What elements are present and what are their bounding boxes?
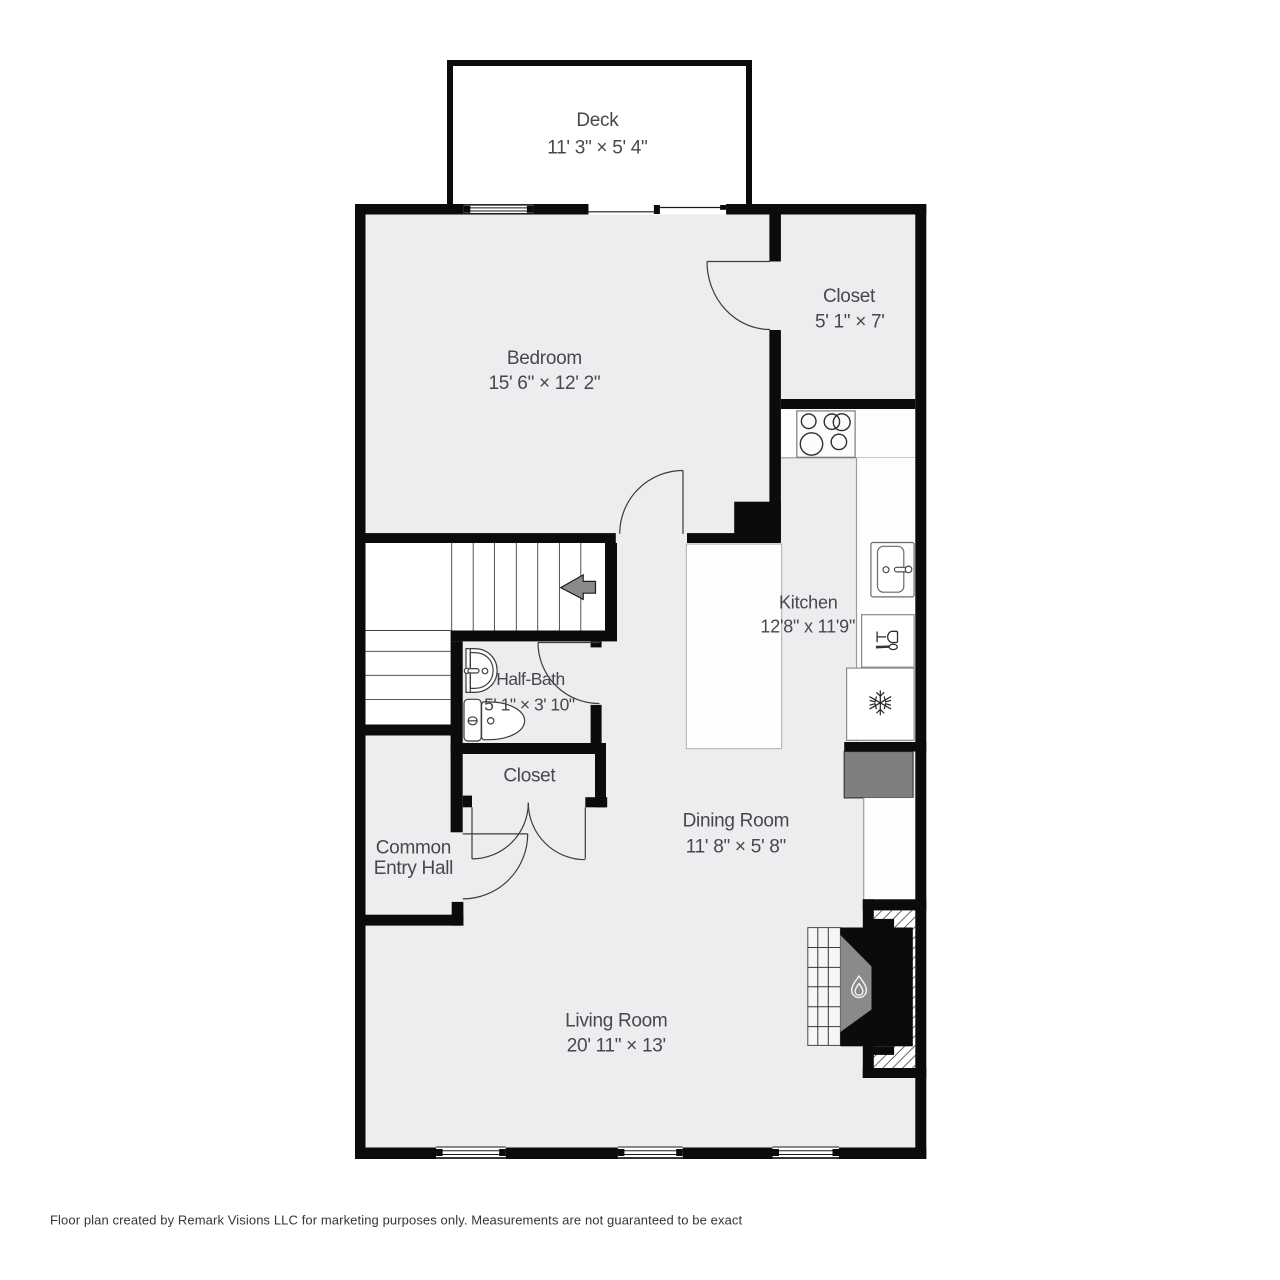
svg-text:Half-Bath: Half-Bath [496,669,564,689]
svg-text:Common: Common [376,837,451,858]
svg-text:15' 6" × 12' 2": 15' 6" × 12' 2" [488,373,600,394]
svg-text:12'8" x 11'9": 12'8" x 11'9" [760,617,855,637]
svg-text:Closet: Closet [823,286,876,307]
svg-text:5' 1" × 7': 5' 1" × 7' [815,311,885,332]
svg-text:11' 3" × 5' 4": 11' 3" × 5' 4" [547,138,647,159]
svg-text:Living Room: Living Room [565,1011,667,1032]
svg-text:Closet: Closet [503,765,556,786]
svg-text:Deck: Deck [576,110,619,131]
svg-text:Kitchen: Kitchen [779,593,838,613]
svg-text:5' 1" × 3' 10": 5' 1" × 3' 10" [484,694,575,714]
svg-text:Floor plan created by Remark V: Floor plan created by Remark Visions LLC… [50,1212,743,1227]
svg-text:Entry Hall: Entry Hall [374,858,453,879]
svg-text:Bedroom: Bedroom [507,348,582,369]
svg-text:Dining Room: Dining Room [683,811,790,832]
svg-text:20' 11" × 13': 20' 11" × 13' [567,1036,666,1057]
svg-text:11' 8" × 5' 8": 11' 8" × 5' 8" [686,837,786,858]
